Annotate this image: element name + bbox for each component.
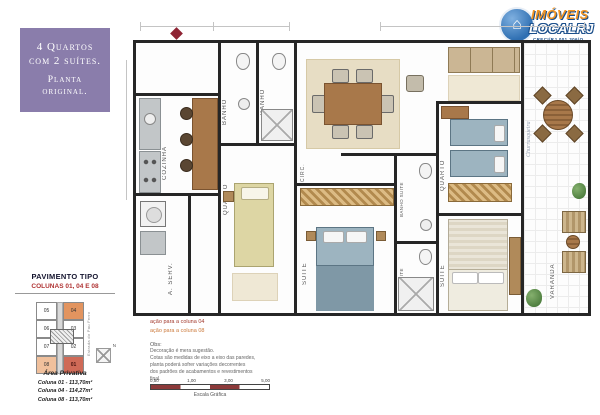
legend-variation-col04: ação para a coluna 04 (150, 318, 280, 327)
dining-chair (356, 125, 373, 139)
dining-table (324, 83, 382, 125)
room-label-circ: CIRC. (300, 156, 306, 182)
room-label-banho-suite: BANHO SUITE (399, 165, 404, 217)
room-label-cozinha: COZINHA (162, 118, 168, 180)
private-area-line: Coluna 04 - 114,27m² (15, 387, 115, 395)
wall (218, 143, 297, 146)
lounge-chair (562, 251, 586, 273)
plant (526, 289, 542, 307)
dimension-line (140, 26, 290, 27)
legend-variation-col08: ação para a coluna 08 (150, 327, 280, 336)
annotation-churrasqueira: Churrasqueira (526, 65, 532, 157)
scale-tick: 5,00 (261, 378, 270, 383)
single-bed (450, 119, 508, 146)
desk (441, 106, 469, 119)
bedroom-rug (232, 273, 278, 301)
bar-stool (180, 159, 193, 172)
promo-line: com 2 suítes. (20, 55, 110, 69)
nightstand (223, 191, 234, 202)
compass-north-label: N (113, 343, 116, 348)
scale-tick-labels: 0,50 1,00 3,00 5,00 (150, 378, 270, 383)
dimension-tick (213, 22, 214, 31)
wall (136, 93, 218, 96)
shower (398, 277, 434, 311)
promo-line: original. (20, 87, 110, 99)
dresser (509, 237, 521, 295)
keyplan-header: PAVIMENTO TIPO COLUNAS 01, 04 E 08 (15, 272, 115, 294)
bed-headboard-canopy (448, 219, 508, 271)
double-bed (316, 227, 374, 311)
armchair (406, 75, 424, 92)
bar-stool (180, 133, 193, 146)
dining-chair (332, 125, 349, 139)
dining-chair (356, 69, 373, 83)
wall (436, 213, 521, 216)
toilet (419, 249, 432, 265)
wall (436, 101, 439, 313)
promo-spacer (20, 68, 110, 75)
bar-stool (180, 107, 193, 120)
room-label-quarto: QUARTO (223, 155, 229, 215)
dimension-line (126, 60, 127, 200)
wall (218, 43, 221, 313)
room-label-banho: BANHO (222, 75, 228, 125)
sofa (448, 47, 520, 73)
wall (341, 153, 437, 156)
room-label-quarto: QUARTO (440, 135, 446, 191)
legend-obs-line: planta poderá sofrer variações decorrent… (150, 362, 280, 369)
toilet (419, 163, 432, 179)
wall (188, 193, 191, 313)
nightstand (376, 231, 386, 241)
dimension-tick (289, 22, 290, 31)
room-label-varanda: VARANDA (550, 243, 556, 299)
promo-box: 4 Quartos com 2 suítes. Planta original. (20, 28, 110, 112)
keyplan-unit-04: 04 (63, 302, 84, 320)
kitchen-sink (144, 113, 156, 125)
balcony-round-table (543, 100, 573, 130)
stove (139, 151, 161, 193)
entrance-marker (170, 27, 183, 40)
single-bed (450, 150, 508, 177)
wall (136, 193, 218, 196)
bed-blanket (316, 265, 374, 311)
bath-sink (238, 98, 250, 110)
room-label-suite: SUITE (302, 235, 308, 285)
legend-block: ação para a coluna 04 ação para a coluna… (150, 318, 280, 383)
scale-caption: Escala Gráfica (150, 392, 270, 398)
wall (394, 241, 436, 244)
double-bed (448, 269, 508, 311)
dining-chair (380, 95, 394, 113)
laundry-tank (140, 231, 166, 255)
dimension-tick (584, 22, 585, 31)
scale-tick: 0,50 (150, 378, 159, 383)
dimension-line (380, 26, 585, 27)
bathtub (261, 109, 293, 141)
private-area-block: Área Privativa Coluna 01 - 113,70m² Colu… (15, 370, 115, 404)
room-label-suite: SUITE (440, 237, 446, 287)
bath-sink (420, 219, 432, 231)
dimension-tick (380, 22, 381, 31)
floor-plan: COZINHA A. SERV. BANHO BANHO QUARTO SALA… (133, 40, 591, 316)
scale-bar (150, 384, 270, 390)
single-bed (234, 183, 274, 267)
private-area-line: Coluna 01 - 113,70m² (15, 379, 115, 387)
room-label-area-servico: A. SERV. (168, 235, 174, 295)
nightstand (306, 231, 316, 241)
promo-line: 4 Quartos (20, 41, 110, 55)
scale-tick: 1,00 (187, 378, 196, 383)
graphic-scale: 0,50 1,00 3,00 5,00 Escala Gráfica (150, 378, 270, 398)
dining-chair (332, 69, 349, 83)
toilet (236, 53, 250, 70)
kitchen-bar-table (192, 98, 218, 190)
legend-obs-line: Decoração é mera sugestão. (150, 348, 280, 355)
dresser (448, 183, 512, 202)
brand-name-top: IMÓVEIS (531, 7, 589, 22)
toilet (272, 53, 286, 70)
living-rug (448, 75, 520, 101)
washing-machine (140, 201, 166, 227)
private-area-title: Área Privativa (15, 370, 115, 377)
wall (294, 43, 297, 313)
wall (436, 101, 521, 104)
compass-icon: N (96, 348, 111, 363)
wall (297, 183, 394, 186)
dimension-tick (140, 22, 141, 31)
keyplan-title: PAVIMENTO TIPO (15, 272, 115, 281)
legend-obs-line: Cotas são medidas de eixo a eixo das par… (150, 355, 280, 362)
keyplan-subtitle: COLUNAS 01, 04 E 08 (15, 283, 115, 294)
wardrobe (300, 188, 394, 206)
promo-line: Planta (20, 75, 110, 87)
keyplan-street-label: Estrada do Pau Ferro (86, 308, 91, 356)
private-area-line: Coluna 08 - 113,70m² (15, 396, 115, 404)
room-label-banho: BANHO (260, 65, 266, 115)
wall (394, 153, 397, 313)
keyplan-unit-05: 05 (36, 302, 57, 320)
lounge-chair (562, 211, 586, 233)
wall (256, 43, 259, 143)
keyplan-elevator (50, 329, 74, 344)
plant (572, 183, 586, 199)
scale-tick: 3,00 (224, 378, 233, 383)
side-table (566, 235, 580, 249)
legend-obs-line: dos padrões de acabamentos e revestiment… (150, 369, 280, 376)
